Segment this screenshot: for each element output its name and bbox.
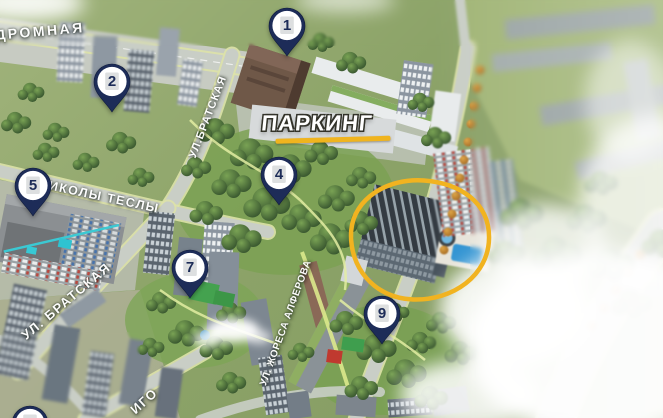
map-viewport[interactable]: ДРОМНАЯ УЛ.БРАТСКАЯ НИКОЛЫ ТЕСЛЫ УЛ. БРА… [0, 0, 663, 418]
map-pins-layer: 1 2 4 5 7 [0, 0, 663, 418]
pin-number: 2 [92, 72, 132, 91]
map-pin-2[interactable]: 2 [92, 62, 132, 114]
map-pin-5[interactable]: 5 [13, 166, 53, 218]
map-pin-1[interactable]: 1 [267, 6, 307, 58]
map-pin-partial[interactable] [10, 404, 50, 418]
map-pin-4[interactable]: 4 [259, 155, 299, 207]
pin-number: 5 [13, 176, 53, 195]
pin-number: 7 [170, 258, 210, 277]
pin-number: 1 [267, 16, 307, 35]
pin-number: 9 [362, 304, 402, 323]
map-pin-7[interactable]: 7 [170, 248, 210, 300]
pin-number: 4 [259, 165, 299, 184]
map-pin-9[interactable]: 9 [362, 294, 402, 346]
